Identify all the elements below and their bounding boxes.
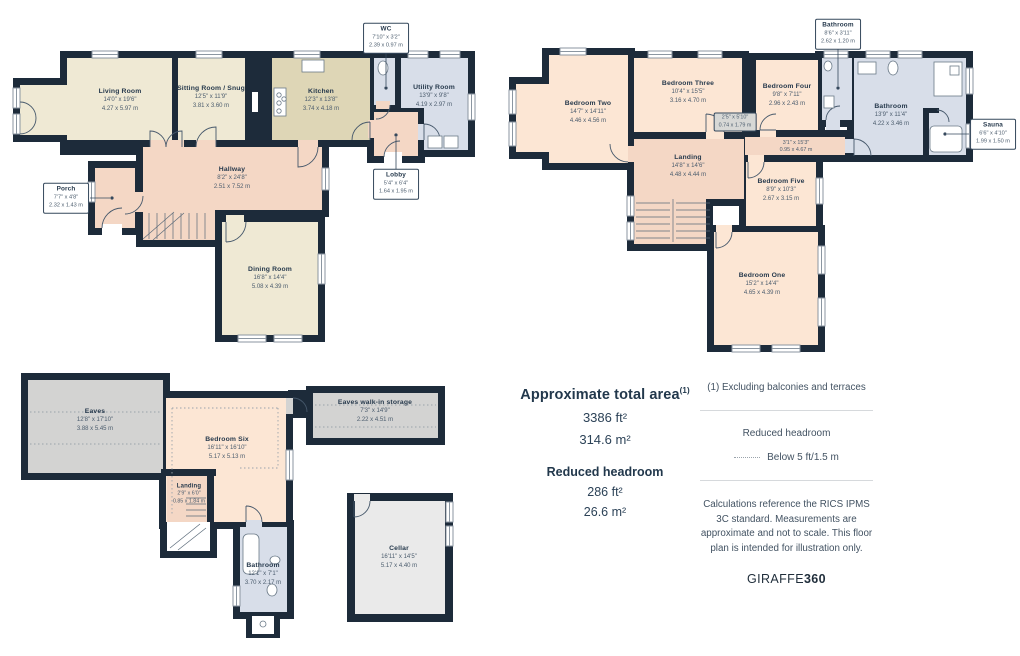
disclaimer-text: Calculations reference the RICS IPMS 3C … [700,498,873,557]
total-area-m: 314.6 m² [519,432,691,447]
divider [700,480,873,481]
room-label-box-porch: Porch 7'7" x 4'8" 2.32 x 1.43 m [43,183,89,214]
room-label-box-closet: 2'5" x 5'10" 0.74 x 1.79 m [714,112,757,131]
room-label-box-bathroom-small: Bathroom 8'6" x 3'11" 2.62 x 1.20 m [815,19,861,50]
dotted-line-sample [734,457,760,458]
room-label-box-sauna: Sauna 6'6" x 4'10" 1.99 x 1.50 m [970,119,1016,150]
area-summary: Approximate total area(1) 3386 ft² 314.6… [519,386,691,519]
room-label-box-lobby: Lobby 5'4" x 6'4" 1.64 x 1.95 m [373,169,419,200]
reduced-headroom-m: 26.6 m² [519,505,691,519]
reduced-headroom-title: Reduced headroom [519,465,691,479]
legend-reduced-headroom-desc: Below 5 ft/1.5 m [767,452,839,463]
floorplan-page: Living Room 14'0" x 19'6" 4.27 x 5.97 m … [0,0,1020,656]
room-label-box-wc: WC 7'10" x 3'2" 2.39 x 0.97 m [363,23,409,54]
giraffe360-logo: GIRAFFE360 [700,572,873,586]
total-area-ft: 3386 ft² [519,410,691,425]
footnote-marker: (1) [680,386,690,395]
legend-reduced-headroom-key: Below 5 ft/1.5 m [700,452,873,463]
divider [700,410,873,411]
legend-column: (1) Excluding balconies and terraces Red… [700,382,873,586]
reduced-headroom-ft: 286 ft² [519,485,691,499]
total-area-title: Approximate total area(1) [519,386,691,403]
footnote-text: (1) Excluding balconies and terraces [700,382,873,393]
legend-reduced-headroom-title: Reduced headroom [700,428,873,439]
